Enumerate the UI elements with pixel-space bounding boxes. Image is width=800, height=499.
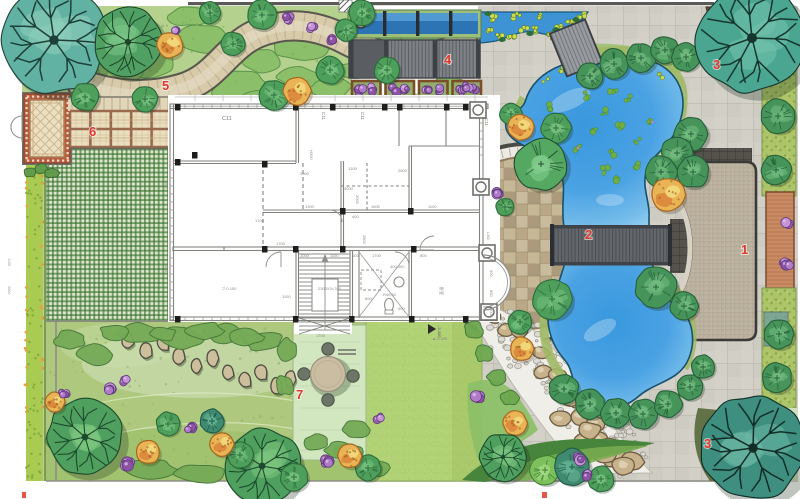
svg-text:3: 3 (713, 57, 720, 72)
svg-text:6: 6 (89, 124, 96, 139)
svg-text:400: 400 (398, 306, 405, 311)
svg-text:▽-0.150: ▽-0.150 (222, 286, 237, 291)
svg-text:900: 900 (489, 270, 494, 277)
svg-text:400,400: 400,400 (390, 264, 405, 269)
svg-text:1700: 1700 (316, 333, 326, 338)
svg-text:400: 400 (352, 214, 359, 219)
svg-text:100: 100 (352, 253, 359, 258)
svg-text:1100: 1100 (164, 265, 169, 274)
svg-text:C11: C11 (360, 112, 365, 120)
svg-text:600: 600 (365, 296, 372, 301)
svg-text:5: 5 (162, 78, 169, 93)
svg-text:-3.300: -3.300 (437, 326, 442, 338)
svg-text:1000: 1000 (300, 253, 310, 258)
svg-text:1600: 1600 (371, 204, 381, 209)
svg-text:1700: 1700 (276, 241, 286, 246)
svg-text:1700: 1700 (255, 218, 265, 223)
svg-text:2000: 2000 (355, 195, 360, 205)
svg-text:1100: 1100 (7, 258, 11, 266)
svg-text:1300: 1300 (305, 204, 315, 209)
svg-text:7: 7 (296, 387, 303, 402)
svg-text:2600: 2600 (398, 168, 408, 173)
svg-text:C11: C11 (222, 116, 232, 122)
svg-text:1000: 1000 (489, 308, 494, 318)
svg-text:4: 4 (444, 52, 452, 67)
svg-text:2800: 2800 (362, 235, 367, 245)
svg-text:H300: H300 (309, 150, 314, 160)
svg-text:3900: 3900 (164, 180, 169, 190)
svg-text:C11: C11 (484, 118, 489, 126)
svg-text:1100: 1100 (330, 253, 339, 258)
svg-text:C11: C11 (321, 112, 326, 120)
svg-text:1700: 1700 (372, 253, 382, 258)
svg-text:R40,60: R40,60 (383, 292, 397, 297)
svg-text:3000: 3000 (344, 186, 354, 191)
svg-text:卧室: 卧室 (439, 287, 445, 295)
svg-text:800: 800 (420, 253, 427, 258)
svg-text:2: 2 (585, 227, 592, 242)
svg-text:1300: 1300 (348, 166, 358, 171)
svg-text:3: 3 (704, 436, 711, 451)
svg-text:2600: 2600 (7, 286, 11, 294)
svg-text:1: 1 (741, 242, 748, 257)
svg-text:2300X3=780: 2300X3=780 (318, 286, 342, 291)
svg-text:LM2: LM2 (486, 232, 491, 241)
svg-text:1100: 1100 (282, 294, 291, 299)
svg-text:3000: 3000 (300, 171, 310, 176)
svg-text:1100: 1100 (428, 204, 437, 209)
svg-text:650: 650 (489, 290, 494, 297)
